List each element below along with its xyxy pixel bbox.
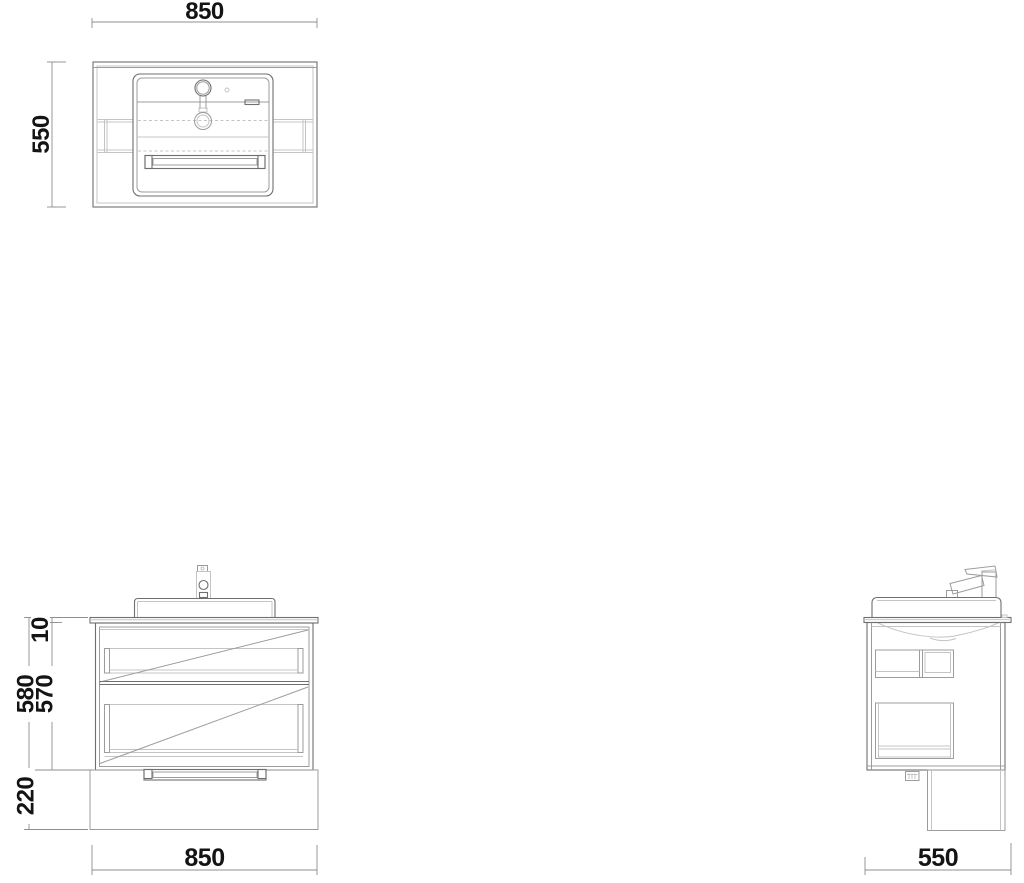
top-view-basin xyxy=(133,74,273,196)
side-view-plinth xyxy=(928,770,1006,831)
front-width-label: 850 xyxy=(184,844,224,872)
front-view-faucet xyxy=(197,566,211,600)
side-view-basin xyxy=(872,598,1001,618)
front-view-width-dimension: 850 xyxy=(92,844,317,875)
front-view-upper-drawer xyxy=(100,630,308,682)
side-view-cabinet xyxy=(867,623,1005,771)
side-view-upper-drawer xyxy=(876,650,954,678)
top-view-width-dimension: 850 xyxy=(92,0,317,28)
side-view-bowl-hidden-line xyxy=(877,623,999,641)
side-view-lower-drawer xyxy=(876,703,954,759)
top-view-depth-dimension: 550 xyxy=(28,62,66,207)
front-view-cabinet xyxy=(96,623,314,770)
top-depth-label: 550 xyxy=(28,115,55,154)
vanity-technical-drawing: 850 550 xyxy=(0,0,1024,883)
front-view-plinth xyxy=(90,770,318,830)
front-view: 10 580 570 220 850 xyxy=(13,566,319,876)
side-depth-label: 550 xyxy=(918,844,958,872)
side-view: 550 xyxy=(864,566,1011,875)
front-view-height-dimensions: 10 580 570 220 xyxy=(13,613,94,830)
countertop-thickness-label: 10 xyxy=(27,617,54,643)
side-view-depth-dimension: 550 xyxy=(865,843,1011,875)
top-view-towel-rail xyxy=(145,156,265,169)
drawing-canvas: 850 550 xyxy=(0,0,1024,883)
front-view-basin xyxy=(135,599,276,619)
front-view-countertop xyxy=(90,618,318,624)
cabinet-height-label: 570 xyxy=(32,675,59,714)
top-view: 850 550 xyxy=(28,0,317,207)
side-view-handle-detail xyxy=(906,772,920,781)
front-view-lower-drawer xyxy=(100,687,308,764)
plinth-height-label: 220 xyxy=(13,777,40,816)
drawer-opening-diagonal xyxy=(100,630,308,682)
top-width-label: 850 xyxy=(185,0,224,25)
